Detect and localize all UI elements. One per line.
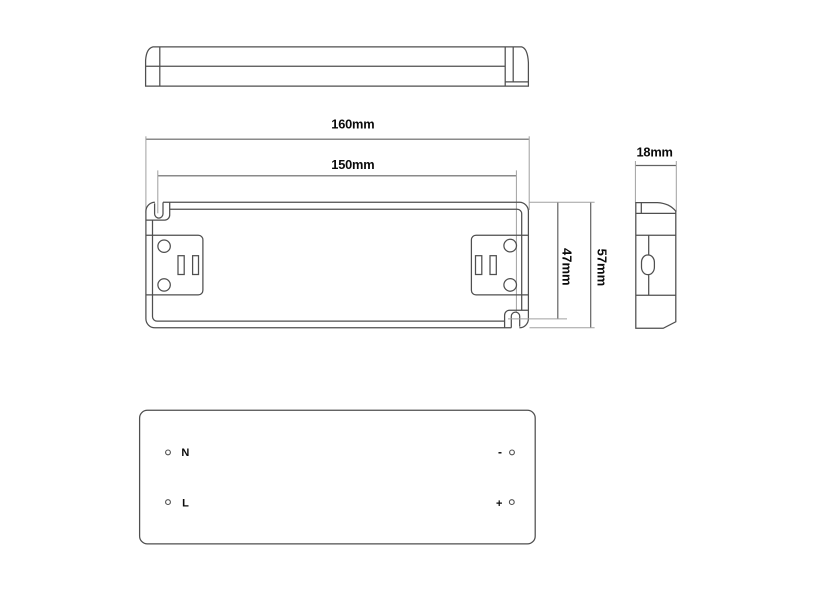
svg-text:150mm: 150mm: [331, 157, 374, 172]
svg-text:57mm: 57mm: [594, 249, 609, 287]
svg-text:18mm: 18mm: [637, 145, 673, 160]
svg-text:N: N: [181, 447, 189, 459]
svg-text:-: -: [498, 445, 502, 459]
svg-text:160mm: 160mm: [331, 116, 374, 131]
svg-text:47mm: 47mm: [559, 248, 574, 286]
svg-text:L: L: [182, 498, 189, 510]
svg-text:+: +: [496, 498, 502, 510]
